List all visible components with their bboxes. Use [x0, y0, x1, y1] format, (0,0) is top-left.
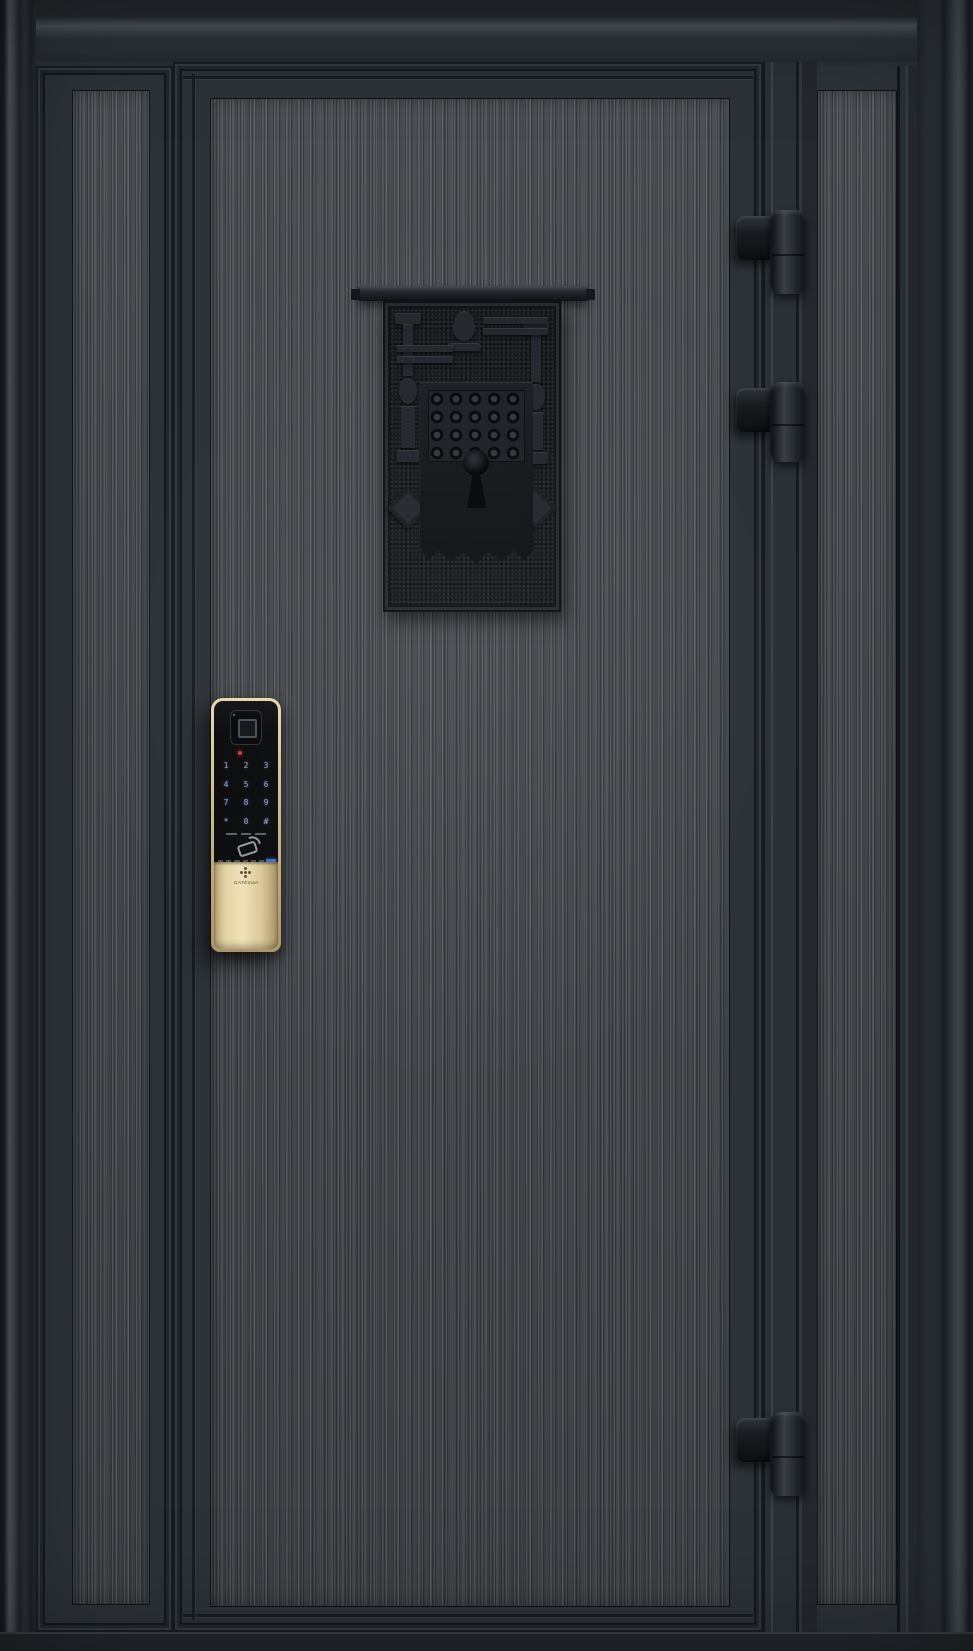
plaque-body	[383, 301, 561, 612]
keypad-key-2: 2	[244, 762, 249, 770]
security-door-photo: 1 2 3 4 5 6 7 8 9 * 0 # GATEman	[0, 0, 973, 1651]
camera-window-icon	[238, 719, 257, 738]
plaque-lintel	[358, 286, 588, 301]
brand-logo-icon	[244, 871, 247, 874]
status-led	[238, 751, 242, 755]
frame-bottom-rail	[0, 1632, 973, 1651]
keypad-key-1: 1	[224, 762, 229, 770]
leaf-top-groove	[183, 76, 753, 79]
ornamental-plaque	[350, 282, 594, 618]
pipe-relief-right-2	[483, 328, 547, 335]
frame-right-jamb	[917, 0, 973, 1651]
column-left-foot-relief	[397, 450, 419, 462]
hinge-knuckle-frame	[770, 382, 806, 462]
column-left-knob-relief	[399, 378, 417, 404]
lock-face: 1 2 3 4 5 6 7 8 9 * 0 #	[214, 701, 278, 862]
keypad-key-4: 4	[224, 781, 229, 789]
keypad-key-6: 6	[264, 781, 269, 789]
pipe-relief-left-1	[397, 345, 453, 352]
card-reader-icon	[237, 840, 259, 857]
fleur-relief	[453, 311, 475, 341]
hinge-knuckle-frame	[770, 1412, 806, 1496]
camera-led-dot	[233, 714, 235, 716]
keypad-key-star: *	[224, 818, 229, 826]
column-left-base-relief	[401, 406, 415, 448]
leaf-left-groove	[192, 74, 195, 1620]
escutcheon-plate	[420, 382, 533, 569]
column-right-shaft-relief	[531, 334, 541, 382]
keypad-key-5: 5	[244, 781, 249, 789]
keypad-divider-marks	[226, 833, 266, 835]
hinge-top	[736, 210, 808, 294]
right-side-panel	[817, 66, 917, 1632]
keypad-key-3: 3	[264, 762, 269, 770]
left-panel-texture	[72, 90, 150, 1605]
keypad: 1 2 3 4 5 6 7 8 9 * 0 #	[216, 757, 276, 831]
hinge-middle	[736, 382, 808, 462]
frame-left-jamb	[0, 0, 36, 1651]
lock-handle-gold: GATEman	[214, 862, 278, 949]
keypad-key-hash: #	[264, 818, 269, 826]
smart-lock: 1 2 3 4 5 6 7 8 9 * 0 # GATEman	[211, 698, 281, 952]
keypad-key-7: 7	[224, 799, 229, 807]
fingerprint-camera-module	[230, 710, 262, 745]
hinge-stile	[763, 62, 817, 1632]
brand-label: GATEman	[220, 881, 271, 886]
keyhole-stem	[467, 472, 486, 508]
left-side-panel	[36, 66, 173, 1632]
keypad-key-9: 9	[264, 799, 269, 807]
leaf-bottom-groove	[183, 1614, 753, 1617]
column-left-capital-relief	[395, 313, 421, 324]
frame-head-rail	[0, 0, 973, 62]
pipe-relief-left-2	[397, 356, 453, 363]
hinge-bottom	[736, 1412, 808, 1496]
keypad-key-8: 8	[244, 799, 249, 807]
right-panel-texture	[817, 90, 897, 1605]
hinge-knuckle-frame	[770, 210, 806, 294]
pipe-relief-right-1	[483, 317, 547, 324]
keypad-key-0: 0	[244, 818, 249, 826]
